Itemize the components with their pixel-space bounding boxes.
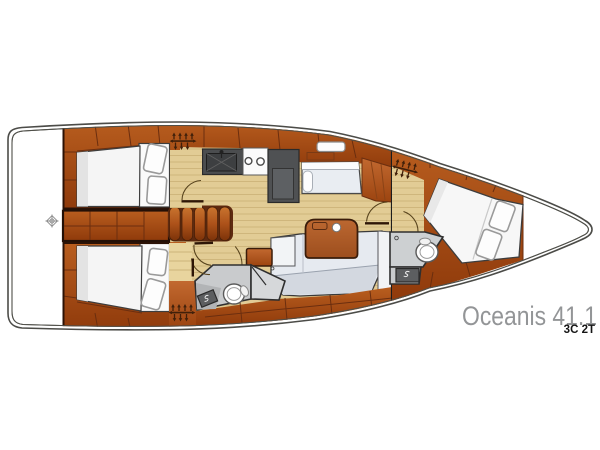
svg-text:3C 2T: 3C 2T (564, 324, 595, 336)
